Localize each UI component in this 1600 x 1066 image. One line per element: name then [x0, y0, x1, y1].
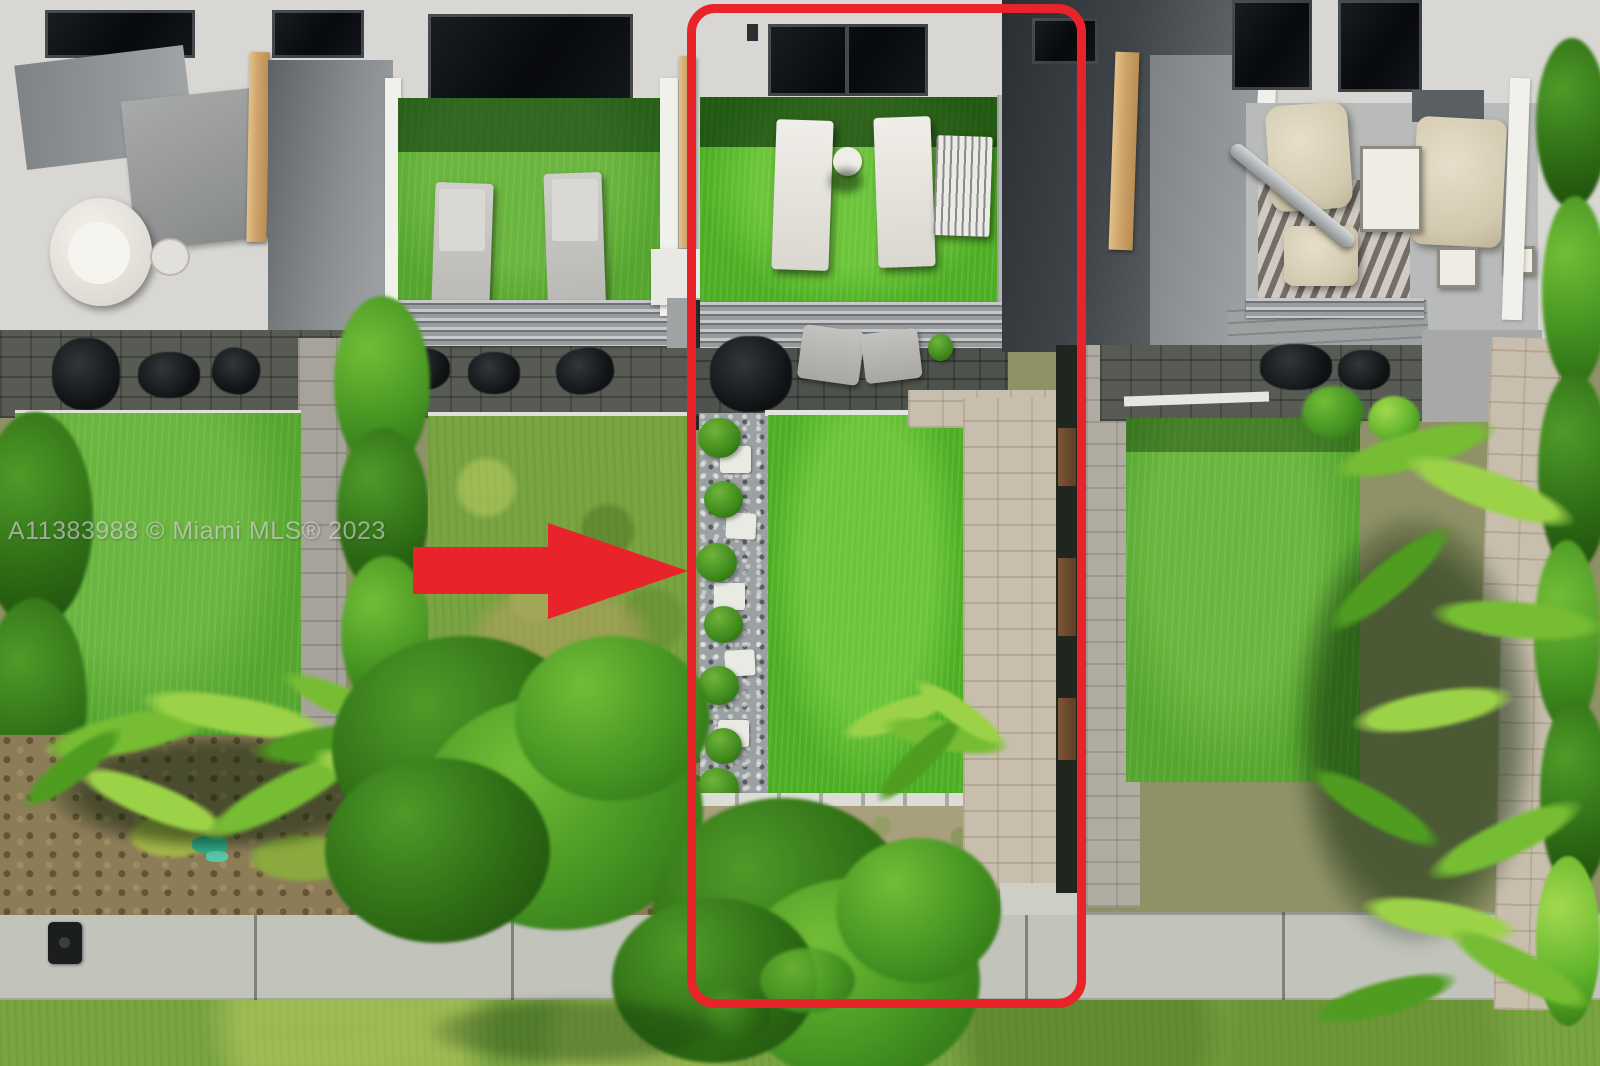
utility-box-cap [59, 937, 70, 948]
palm-bush-top-1 [1302, 386, 1364, 438]
sliding-door-unit2 [428, 14, 633, 102]
gray-lounger-1-pad [439, 189, 485, 251]
balcony-railing-unit2 [397, 300, 669, 346]
skylight-right-2 [1338, 0, 1422, 92]
balcony-railing-unit5 [1246, 298, 1424, 318]
tree-shadow-lawn [430, 998, 720, 1064]
hedge-right-2 [1542, 196, 1600, 386]
patio-furniture-r1 [1260, 344, 1332, 390]
gray-lounger-2-pad [552, 179, 598, 241]
patio-chair-m2 [468, 352, 520, 394]
side-table-round [150, 238, 190, 276]
aerial-listing-photo: A11383988 © Miami MLS® 2023 [0, 0, 1600, 1066]
hedge-right-1 [1536, 38, 1600, 208]
coffee-table [1360, 146, 1422, 232]
patio-pouf-1 [138, 352, 200, 398]
patio-shadow-unit2 [398, 98, 666, 152]
patio-furniture-r2 [1338, 350, 1390, 390]
daybed-cushion [68, 222, 130, 284]
tree-canopy-mid-3 [325, 758, 550, 943]
mls-watermark: A11383988 © Miami MLS® 2023 [8, 517, 386, 546]
covered-sofa [1411, 116, 1508, 249]
covered-armchair-1 [1264, 101, 1353, 212]
wood-divider-beam-1 [246, 52, 269, 242]
teal-garden-item-2 [206, 851, 228, 862]
skylight-left-2 [272, 10, 364, 58]
skylight-right-1 [1232, 0, 1312, 90]
highlight-rectangle [687, 4, 1086, 1008]
tree-canopy-mid-4 [515, 636, 710, 801]
side-table-1 [1437, 247, 1478, 288]
kettle-grill [52, 338, 120, 410]
